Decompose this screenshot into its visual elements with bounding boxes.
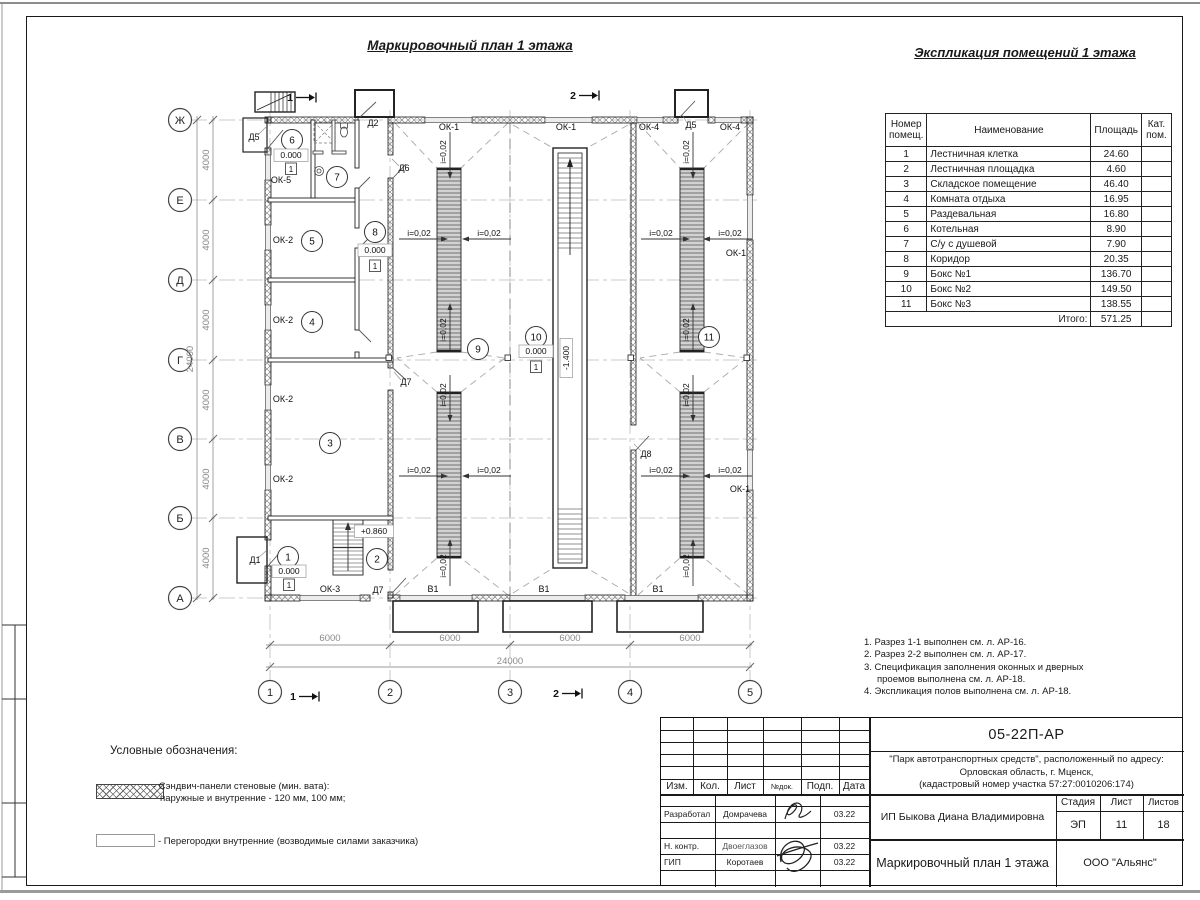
- sheet-bottom-edge: [0, 890, 1200, 893]
- tb-sheet-title: Маркировочный план 1 этажа: [869, 839, 1056, 887]
- explication-title: Экспликация помещений 1 этажа: [885, 45, 1165, 60]
- tb-stage-value: ЭП: [1056, 811, 1100, 839]
- tb-name-gip: Коротаев: [715, 854, 775, 870]
- tb-role-ncontrol: Н. контр.: [661, 838, 718, 854]
- table-row: 11Бокс №3138.55: [886, 297, 1172, 312]
- tb-col-ndok: №док.: [763, 779, 801, 794]
- notes-list: 1. Разрез 1-1 выполнен см. л. АР-16.2. Р…: [864, 637, 1122, 698]
- tb-name-developer: Домрачева: [715, 806, 775, 822]
- note-item: 1. Разрез 1-1 выполнен см. л. АР-16.: [864, 637, 1122, 649]
- table-row: 7С/у с душевой7.90: [886, 237, 1172, 252]
- tb-doc-number: 05-22П-АР: [869, 718, 1184, 751]
- table-row: 6Котельная8.90: [886, 222, 1172, 237]
- sheet-top-edge: [0, 2, 1200, 4]
- note-item: 3. Спецификация заполнения оконных и две…: [864, 662, 1122, 687]
- tb-company: ООО "Альянс": [1056, 839, 1184, 887]
- explication-table: Номерпомещ.НаименованиеПлощадьКат.пом.1Л…: [885, 113, 1172, 327]
- tb-col-kol: Кол.: [693, 779, 727, 794]
- table-row: 10Бокс №2149.50: [886, 282, 1172, 297]
- tb-role-gip: ГИП: [661, 854, 718, 870]
- table-row: 1Лестничная клетка24.60: [886, 147, 1172, 162]
- tb-project: "Парк автотранспортных средств", располо…: [875, 754, 1178, 792]
- tb-sheet-label: Лист: [1100, 794, 1143, 811]
- filing-strip: [2, 4, 26, 890]
- title-block: Изм. Кол. Лист №док. Подп. Дата Разработ…: [660, 717, 1183, 886]
- note-item: 4. Экспликация полов выполнена см. л. АР…: [864, 686, 1122, 698]
- tb-client: ИП Быкова Диана Владимировна: [869, 794, 1056, 839]
- table-row: 2Лестничная площадка4.60: [886, 162, 1172, 177]
- table-row: 8Коридор20.35: [886, 252, 1172, 267]
- legend-item-partition: - Перегородки внутренние (возводимые сил…: [158, 836, 418, 847]
- legend-item-sandwich-panel: - Сэндвич-панели стеновые (мин. вата): н…: [153, 781, 345, 805]
- table-row: 3Складское помещение46.40: [886, 177, 1172, 192]
- tb-date-developer: 03.22: [820, 806, 869, 822]
- signatures: [775, 794, 820, 887]
- tb-col-podp: Подп.: [801, 779, 839, 794]
- tb-role-developer: Разработал: [661, 806, 718, 822]
- note-item: 2. Разрез 2-2 выполнен см. л. АР-17.: [864, 649, 1122, 661]
- tb-sheet-value: 11: [1100, 811, 1143, 839]
- table-total-row: Итого:571.25: [886, 312, 1172, 327]
- table-row: 5Раздевальная16.80: [886, 207, 1172, 222]
- tb-stage-label: Стадия: [1056, 794, 1100, 811]
- table-row: 4Комната отдыха16.95: [886, 192, 1172, 207]
- legend-title: Условные обозначения:: [110, 745, 237, 757]
- tb-col-list: Лист: [727, 779, 763, 794]
- tb-sheets-label: Листов: [1143, 794, 1184, 811]
- tb-date-ncontrol: 03.22: [820, 838, 869, 854]
- tb-col-izm: Изм.: [661, 779, 693, 794]
- drawing-sheet: { "sheet": { "plan_title": "Маркировочны…: [0, 0, 1200, 900]
- tb-date-gip: 03.22: [820, 854, 869, 870]
- table-header-row: Номерпомещ.НаименованиеПлощадьКат.пом.: [886, 114, 1172, 147]
- tb-sheets-value: 18: [1143, 811, 1184, 839]
- tb-name-ncontrol: Двоеглазов: [715, 838, 775, 854]
- table-row: 9Бокс №1136.70: [886, 267, 1172, 282]
- plan-title: Маркировочный план 1 этажа: [290, 38, 650, 53]
- tb-col-data: Дата: [839, 779, 869, 794]
- legend-swatch-partition: [96, 834, 155, 847]
